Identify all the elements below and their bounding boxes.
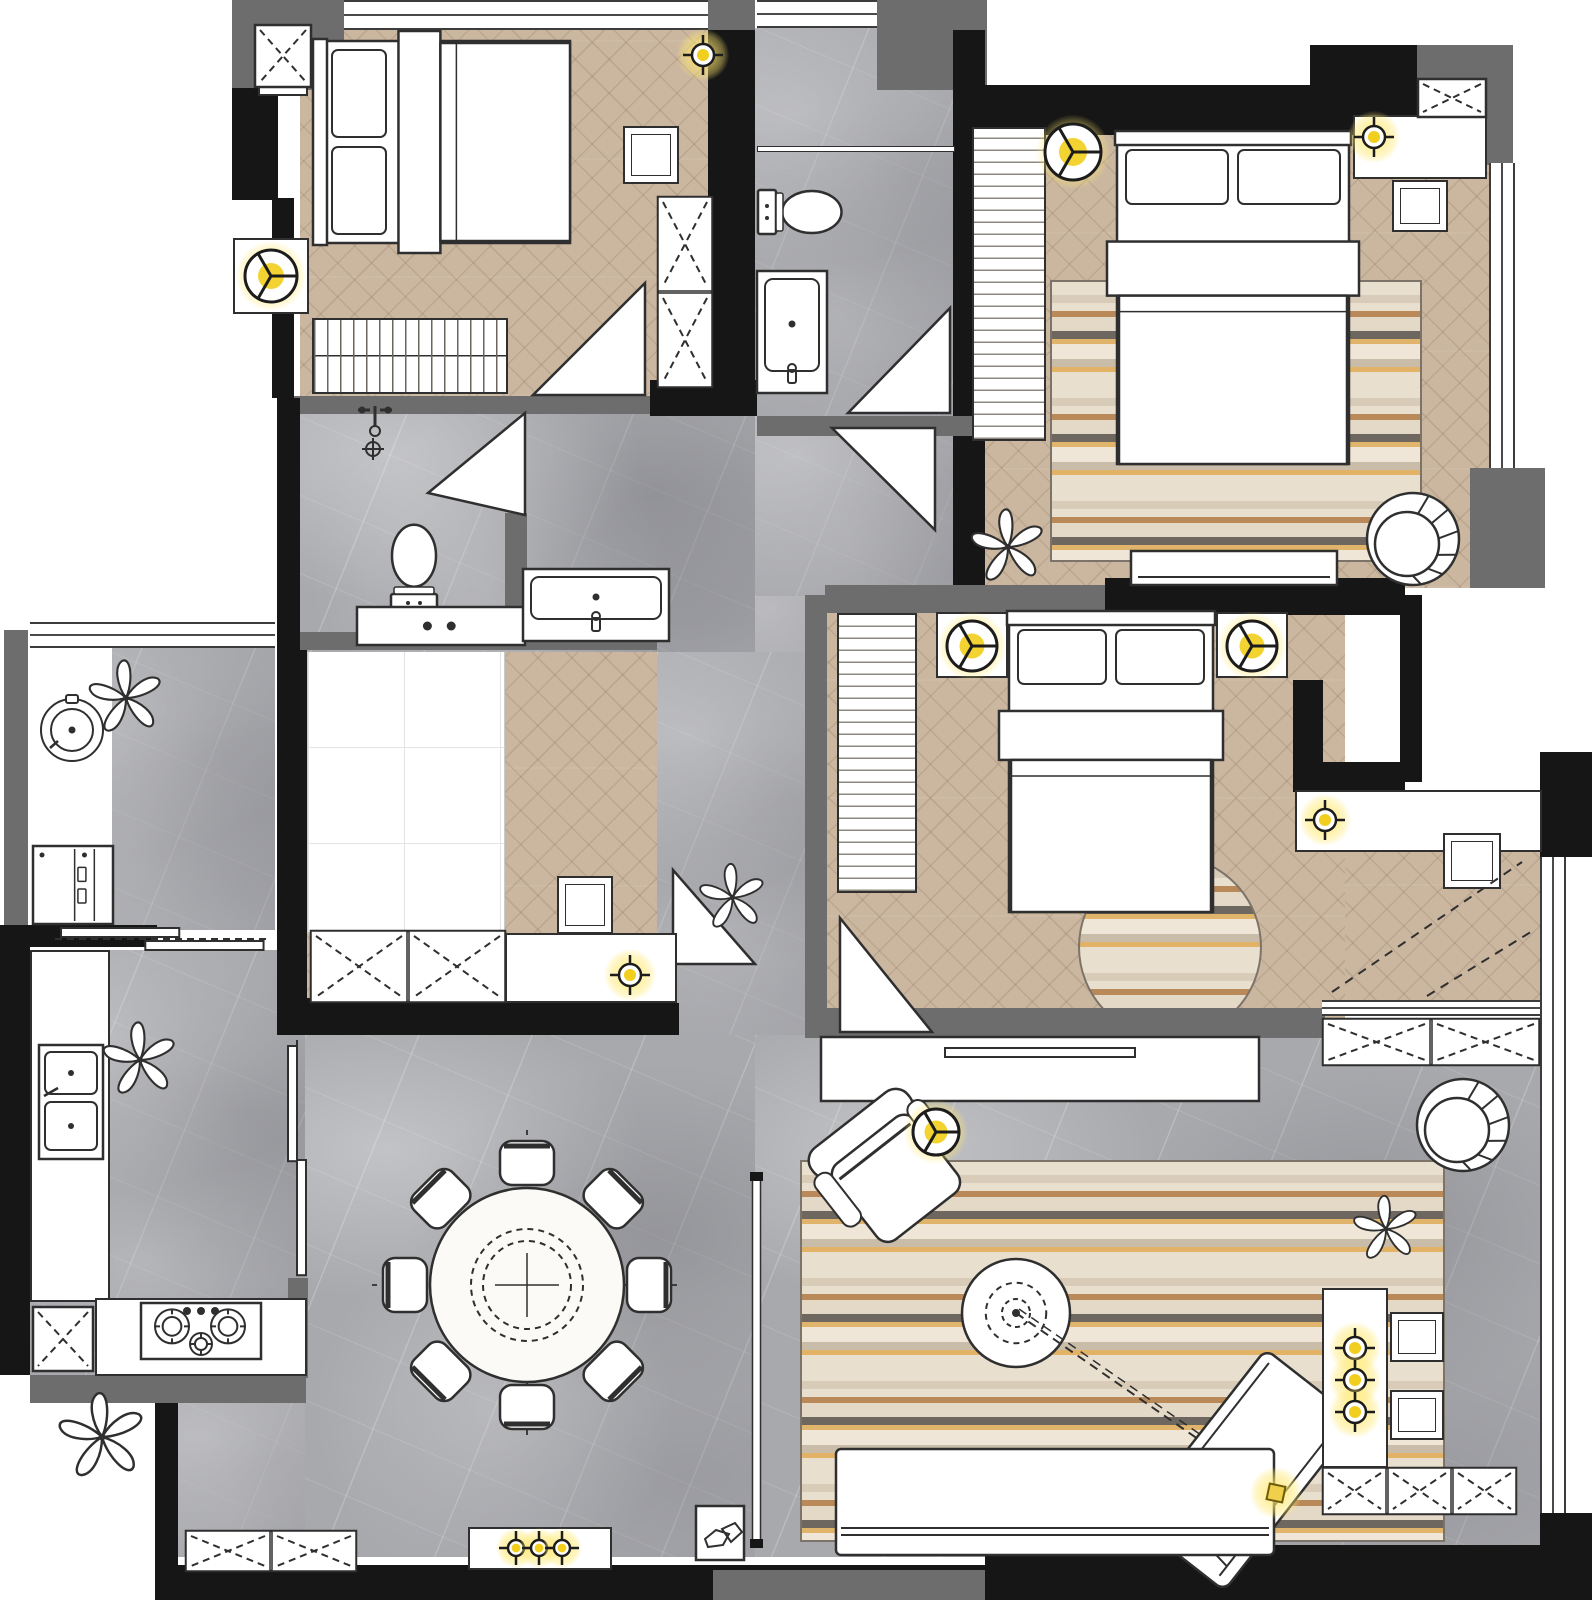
wall-master-north-up [1310, 45, 1417, 87]
bedroom-a-radiator [312, 318, 508, 394]
tatami-wardrobe [310, 930, 506, 1003]
bathroom-vanity [756, 270, 828, 394]
wall-tatami-west [277, 640, 307, 1005]
kitchen-sink [38, 1044, 104, 1160]
kitchen-cooktop [140, 1302, 262, 1360]
ceiling-light-icon [1225, 619, 1279, 673]
window-bedroom-a [344, 0, 708, 30]
column-divider [750, 1172, 763, 1548]
window-living-east [1540, 857, 1566, 1513]
wall-bedroom-a-south [294, 396, 656, 414]
wall-east-gray-mid [1470, 468, 1545, 588]
tatami-platform [307, 650, 505, 933]
bedroom-a-side-table [623, 126, 679, 184]
ceiling-light-icon [945, 619, 999, 673]
window-bathroom [757, 0, 877, 28]
powder-counter [356, 606, 526, 646]
ceiling-light-icon [1043, 122, 1103, 182]
hall-plant [695, 860, 770, 935]
ceiling-light-icon [1353, 116, 1395, 158]
floor-drain-mark [360, 436, 386, 462]
wall-nook-h [1293, 762, 1405, 790]
kitchen-fridge [32, 1306, 94, 1372]
master-stool-top [1400, 188, 1440, 224]
window-sill-entry [1322, 1000, 1540, 1016]
door-bedroom-a [533, 283, 645, 395]
door-master [832, 428, 935, 530]
door-powder-room [428, 413, 525, 515]
kitchen-plant [98, 1018, 182, 1102]
wall-kitchen-west [0, 947, 30, 1375]
sliding-door-balcony [55, 926, 270, 952]
wall-shaft-east [1400, 595, 1422, 782]
master-stool [1392, 180, 1448, 232]
wall-bedroom-a-east [708, 28, 755, 390]
shower-glass [757, 146, 955, 152]
door-bedroom-c [840, 918, 932, 1032]
powder-toilet [385, 520, 443, 614]
wall-hall-west [277, 398, 300, 642]
bar-stool-1-top [1398, 1320, 1436, 1354]
floor-light-icon [1264, 1481, 1288, 1505]
wall-bedroom-a-east-cap [708, 0, 755, 30]
bar-stool-2 [1390, 1390, 1444, 1440]
wall-bedroom-c-west [805, 595, 827, 1035]
bedroom-c-bed [1006, 610, 1216, 916]
living-shell-chair [1408, 1068, 1518, 1178]
wall-balcony-west [4, 630, 28, 928]
wall-entry-ne [1540, 752, 1592, 857]
balcony-plant [82, 656, 170, 740]
dining-shoe-cabinets [185, 1530, 357, 1572]
ceiling-light-icon [243, 248, 299, 304]
entry-closets [1322, 1018, 1540, 1066]
tatami-stool-top [565, 884, 605, 926]
master-corner-cabinet [1417, 78, 1487, 118]
wall-master-south-gray [825, 585, 1107, 613]
bar-stool-1 [1390, 1312, 1444, 1362]
master-shell-chair [1358, 482, 1462, 586]
bedroom-a-bed [312, 38, 574, 246]
master-lowboard [1130, 550, 1338, 586]
wall-se-corner [1540, 1513, 1592, 1600]
dining-table-set [347, 1105, 707, 1465]
living-plant [1338, 1192, 1434, 1266]
bedroom-a-side-table-top [631, 134, 671, 176]
window-master-east [1489, 163, 1515, 468]
ceiling-light-icon [682, 34, 724, 76]
hall-wash-vanity [522, 568, 670, 642]
wall-south-gray [713, 1570, 988, 1600]
corridor-floor [657, 652, 827, 1035]
cabinet-light-icon [544, 1530, 580, 1566]
duct-panel [254, 24, 312, 88]
outdoor-plant [52, 1388, 152, 1486]
wall-ne-gray-v [1487, 50, 1513, 165]
wall-tatami-south [277, 1003, 679, 1035]
bedroom-c-wardrobe [837, 613, 917, 893]
master-wardrobe [972, 127, 1046, 441]
ceiling-light-icon [911, 1107, 961, 1157]
tatami-stool [557, 876, 613, 934]
living-sofa [835, 1448, 1275, 1556]
master-plant [963, 505, 1053, 589]
door-bathroom [848, 308, 950, 413]
floor-plan-canvas [0, 0, 1592, 1600]
slipper-box [695, 1505, 745, 1561]
bathroom-toilet [756, 184, 846, 240]
wall-left-upper [232, 88, 278, 200]
wall-kitchen-ne [280, 998, 330, 1035]
bedroom-a-wardrobe [657, 196, 713, 388]
ceiling-light-icon [609, 954, 651, 996]
window-balcony [30, 622, 275, 648]
ceiling-light-icon [1334, 1391, 1376, 1433]
entry-door-swing [1322, 852, 1540, 1000]
balcony-cabinet [32, 845, 114, 925]
sliding-door-kitchen [286, 1040, 308, 1280]
living-storage-cabinets [1322, 1467, 1517, 1515]
bar-stool-2-top [1398, 1398, 1436, 1432]
ceiling-light-icon [1304, 799, 1346, 841]
master-bed [1114, 130, 1352, 468]
